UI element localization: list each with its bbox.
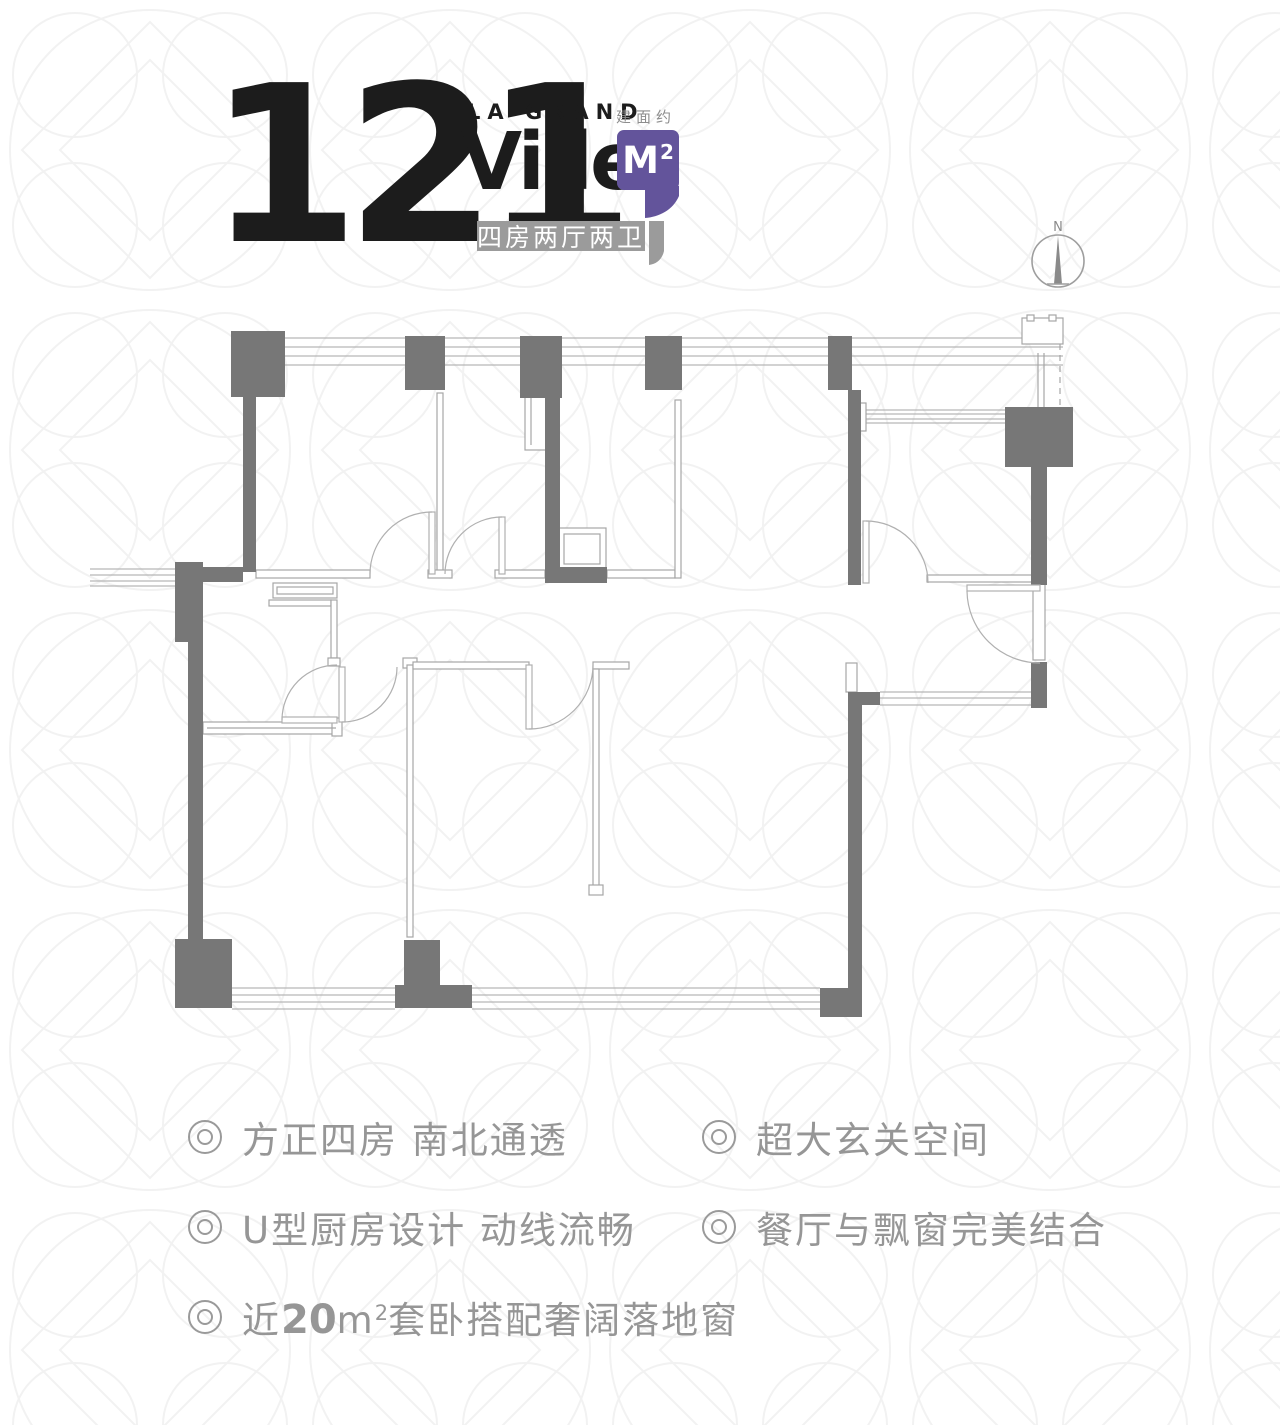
m2-badge: M 2 [617, 130, 679, 190]
feature-unit: m [337, 1299, 375, 1342]
doors [282, 512, 1040, 729]
detail-lines [207, 344, 1060, 728]
bullet-circle-icon [188, 1120, 222, 1154]
m2-badge-letter: M [622, 142, 659, 179]
feature-text: 超大玄关空间 [756, 1110, 990, 1164]
compass-icon: N [1032, 220, 1084, 287]
feature-area-number: 20 [281, 1297, 337, 1343]
structural-walls [175, 331, 1073, 1017]
area-unit-label: 建面约 [616, 106, 676, 127]
bullet-circle-icon [702, 1120, 736, 1154]
layout-badge-tail [649, 221, 671, 267]
poster-canvas: N 121 LA GRAND Ville 建面约 M 2 四房两厅两卫 方正四房… [0, 0, 1280, 1425]
layout-type-text: 四房两厅两卫 [477, 218, 645, 254]
feature-item: 餐厅与飘窗完美结合 [702, 1200, 1107, 1254]
brand-line-main: Ville [461, 116, 641, 208]
m2-badge-tail [645, 186, 679, 220]
layout-type-badge: 四房两厅两卫 [477, 221, 645, 251]
feature-row-2: U型厨房设计 动线流畅 餐厅与飘窗完美结合 [188, 1198, 1188, 1256]
feature-item: 方正四房 南北通透 [188, 1110, 702, 1164]
m2-badge-sup: 2 [660, 142, 674, 162]
feature-text: 方正四房 南北通透 [242, 1110, 568, 1164]
feature-text: 近20m2套卧搭配奢阔落地窗 [242, 1290, 739, 1344]
feature-text-prefix: 近 [242, 1299, 281, 1342]
thin-walls [203, 315, 1063, 937]
bullet-circle-icon [188, 1300, 222, 1334]
feature-text: 餐厅与飘窗完美结合 [756, 1200, 1107, 1254]
compass-north-label: N [1053, 220, 1063, 235]
feature-item: U型厨房设计 动线流畅 [188, 1200, 702, 1254]
door-arcs [282, 512, 1040, 729]
feature-text-suffix: 套卧搭配奢阔落地窗 [388, 1299, 739, 1342]
feature-row-1: 方正四房 南北通透 超大玄关空间 [188, 1108, 1188, 1166]
feature-text: U型厨房设计 动线流畅 [242, 1200, 636, 1254]
feature-row-3: 近20m2套卧搭配奢阔落地窗 [188, 1288, 1188, 1346]
door-leaves [282, 512, 1040, 729]
feature-unit-sup: 2 [375, 1301, 388, 1325]
feature-item: 超大玄关空间 [702, 1110, 990, 1164]
feature-item: 近20m2套卧搭配奢阔落地窗 [188, 1290, 739, 1344]
window-lines [90, 338, 1063, 1009]
bullet-circle-icon [188, 1210, 222, 1244]
bullet-circle-icon [702, 1210, 736, 1244]
